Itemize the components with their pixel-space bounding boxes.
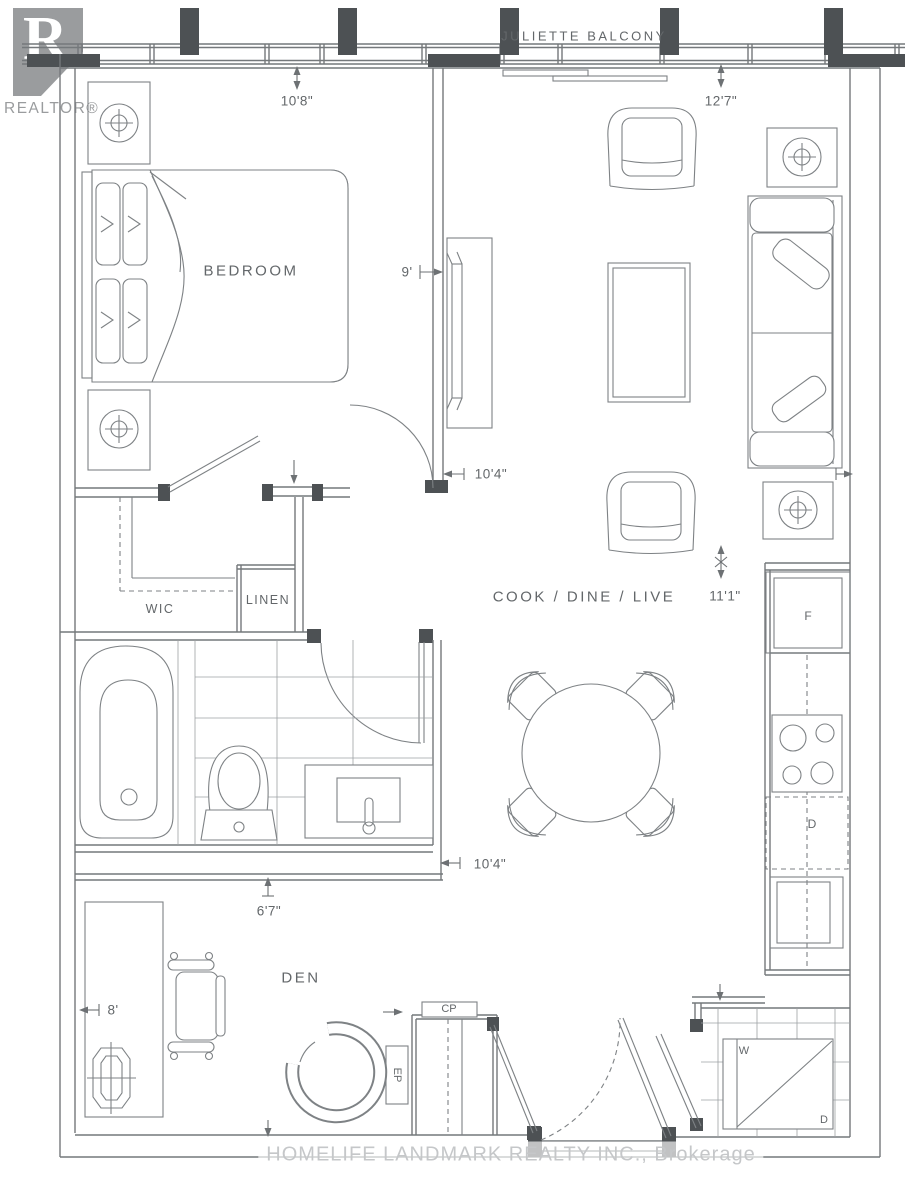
label-ep-panel: EP: [391, 1068, 403, 1083]
nightstand-top: [88, 82, 150, 164]
label-fridge: F: [804, 609, 811, 623]
end-table-bottom: [763, 482, 833, 539]
bedroom-closet-door: [168, 436, 260, 492]
dim-living-width-lower: 10'4": [474, 857, 506, 872]
floorplan-drawing: [0, 0, 919, 1200]
tv-unit: [447, 238, 492, 428]
label-cook-dine-live: COOK / DINE / LIVE: [493, 589, 676, 606]
bedroom-door-swing: [350, 405, 433, 488]
brokerage-watermark: HOMELIFE LANDMARK REALTY INC., Brokerage: [258, 1142, 763, 1169]
vanity-sink: [305, 765, 433, 838]
dim-den-depth: 6'7": [257, 904, 281, 919]
dim-den-width: 8': [107, 1003, 118, 1018]
label-dryer: D: [820, 1114, 828, 1126]
balcony-door-panel: [503, 70, 588, 76]
nightstand-bottom: [88, 390, 150, 470]
cooktop: [772, 715, 842, 792]
dim-living-height: 12'7": [705, 94, 737, 109]
pillows: [96, 183, 147, 363]
wd-closet-door: [656, 1034, 701, 1128]
area-rug: [87, 1042, 136, 1114]
armchair-top: [608, 108, 696, 190]
den-furniture: [85, 902, 380, 1117]
dining-set: [497, 661, 685, 847]
den-chair: [292, 1028, 380, 1116]
sofa: [748, 196, 842, 468]
dim-bedroom-width: 9': [401, 265, 412, 280]
label-linen: LINEN: [246, 593, 290, 607]
office-chair: [168, 953, 225, 1060]
toilet: [201, 746, 277, 840]
balcony-door-panel: [553, 76, 667, 81]
armchair-bottom: [607, 472, 695, 554]
dim-living-length: 11'1": [709, 589, 740, 604]
label-cp-closet: CP: [441, 1003, 456, 1015]
dishwasher-outline: [766, 797, 848, 869]
entry-door: [541, 1018, 671, 1140]
floor-plan: R REALTOR®: [0, 0, 919, 1200]
label-wic: WIC: [146, 602, 175, 616]
sofa-pillow: [769, 373, 829, 425]
bathtub: [80, 646, 173, 838]
coffee-table: [608, 263, 690, 402]
sofa-pillow: [769, 235, 833, 292]
label-den: DEN: [281, 970, 320, 987]
bathroom-door: [321, 642, 424, 743]
headboard: [82, 172, 92, 378]
dining-table: [522, 684, 660, 822]
label-bedroom: BEDROOM: [203, 263, 298, 280]
label-juliette-balcony: JULIETTE BALCONY: [501, 29, 667, 44]
wic-closet-lines: [120, 497, 237, 591]
kitchen: [766, 572, 850, 968]
end-table-top: [767, 128, 837, 187]
dim-bedroom-height: 10'8": [281, 94, 313, 109]
dim-living-width-upper: 10'4": [475, 467, 507, 482]
label-washer: W: [739, 1045, 749, 1057]
label-dishwasher: D: [808, 817, 817, 831]
